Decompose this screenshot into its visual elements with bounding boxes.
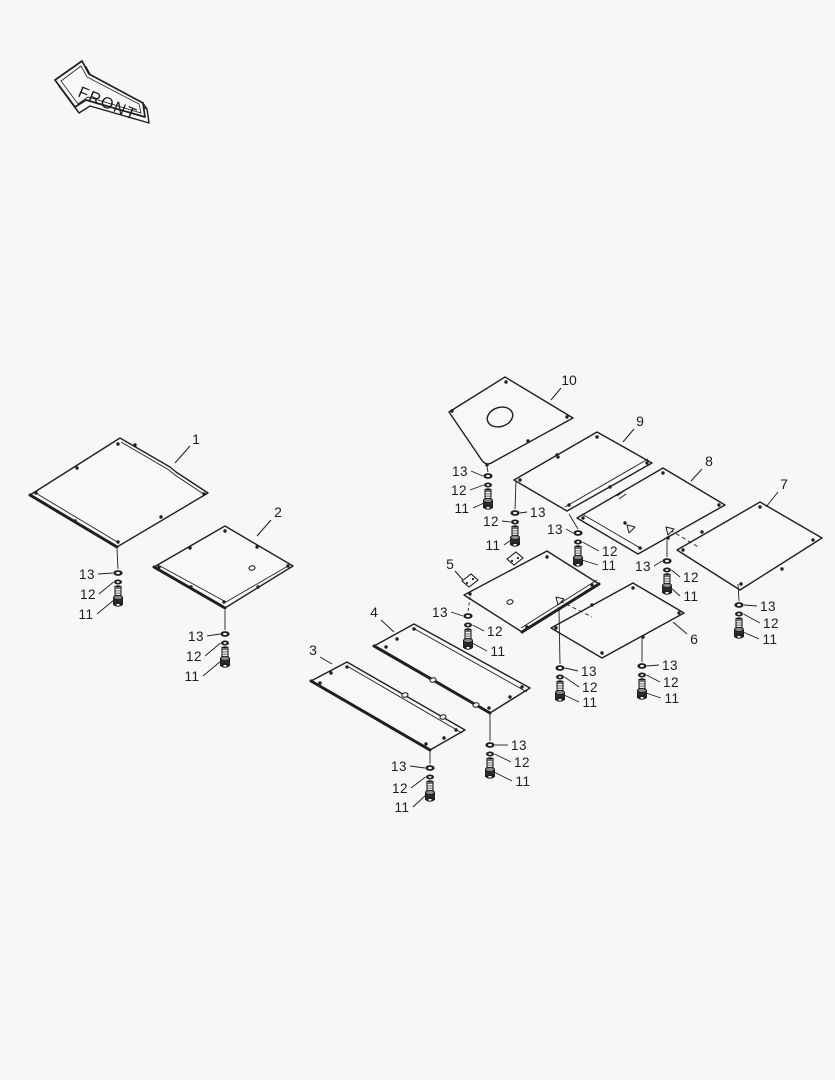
- bolt-hole-dot: [590, 603, 593, 606]
- part-label-2: 2: [274, 504, 282, 520]
- callout-label-13: 13: [581, 664, 597, 679]
- bolt-hole-dot: [189, 585, 192, 588]
- callout-label-11: 11: [762, 632, 777, 647]
- part-label-7: 7: [780, 476, 788, 492]
- bolt-head-center: [576, 564, 579, 566]
- washer-13-hole: [428, 767, 432, 769]
- part-label-10: 10: [561, 372, 577, 388]
- spring-washer-12-hole: [737, 613, 740, 615]
- bolt-hole-dot: [329, 671, 332, 674]
- bolt-shaft-top: [465, 628, 471, 631]
- spring-washer-12-hole: [640, 674, 643, 676]
- callout-label-11: 11: [394, 800, 409, 815]
- bolt-hole-dot: [468, 592, 471, 595]
- bolt-hole-dot: [286, 564, 289, 567]
- tab-hole: [466, 582, 468, 584]
- bolt-hole-dot: [157, 565, 160, 568]
- callout-label-12: 12: [487, 624, 503, 639]
- bolt-hole-dot: [623, 521, 626, 524]
- bolt-hole-dot: [545, 555, 548, 558]
- part-label-1: 1: [192, 431, 200, 447]
- bolt-head-rim: [484, 498, 493, 502]
- bolt-head-rim: [464, 638, 473, 642]
- bolt-hole-dot: [75, 466, 78, 469]
- washer-13-hole: [488, 744, 492, 746]
- bolt-hole-dot: [567, 503, 570, 506]
- bolt-hole-dot: [485, 463, 488, 466]
- bolt-hole-dot: [666, 536, 669, 539]
- bolt-hole-dot: [424, 742, 427, 745]
- callout-label-12: 12: [392, 781, 408, 796]
- callout-label-11: 11: [582, 695, 597, 710]
- bolt-head-center: [223, 665, 226, 667]
- bolt-head-rim: [426, 790, 435, 794]
- bolt-hole-dot: [223, 529, 226, 532]
- bolt-hole-dot: [739, 582, 742, 585]
- part-label-3: 3: [309, 642, 317, 658]
- bolt-hole-dot: [780, 567, 783, 570]
- callout-label-12: 12: [451, 483, 467, 498]
- bolt-hole-dot: [600, 651, 603, 654]
- bolt-hole-dot: [681, 548, 684, 551]
- bolt-hole-dot: [442, 736, 445, 739]
- washer-13-hole: [665, 560, 669, 562]
- callout-label-12: 12: [483, 514, 499, 529]
- bolt-hole-dot: [608, 485, 611, 488]
- bolt-hole-dot: [700, 530, 703, 533]
- bolt-hole-dot: [520, 685, 523, 688]
- bolt-shaft-top: [485, 488, 491, 491]
- callout-label-12: 12: [80, 587, 96, 602]
- bolt-hole-dot: [717, 503, 720, 506]
- bolt-hole-dot: [758, 505, 761, 508]
- callout-label-11: 11: [664, 691, 679, 706]
- tab-hole: [511, 560, 513, 562]
- bolt-head-center: [486, 507, 489, 509]
- bolt-hole-dot: [116, 442, 119, 445]
- bolt-hole-dot: [188, 546, 191, 549]
- bolt-hole-dot: [677, 611, 680, 614]
- spring-washer-12-hole: [428, 776, 431, 778]
- callout-label-13: 13: [79, 567, 95, 582]
- bolt-shaft-top: [575, 545, 581, 548]
- bolt-hole-dot: [595, 435, 598, 438]
- callout-label-11: 11: [601, 558, 616, 573]
- part-label-9: 9: [636, 413, 644, 429]
- bolt-hole-dot: [508, 695, 511, 698]
- bolt-shaft-top: [664, 573, 670, 576]
- bolt-head-center: [428, 799, 431, 801]
- part-label-6: 6: [690, 631, 698, 647]
- bolt-head-center: [640, 697, 643, 699]
- parts-diagram-page: FRONT10987125643131211131211131211131211…: [0, 0, 835, 1080]
- washer-13-hole: [466, 615, 470, 617]
- bolt-hole-dot: [450, 409, 453, 412]
- spring-washer-12-hole: [665, 569, 668, 571]
- washer-13-hole: [576, 532, 580, 534]
- callout-label-13: 13: [530, 505, 546, 520]
- callout-label-13: 13: [547, 522, 563, 537]
- bolt-hole-dot: [222, 600, 225, 603]
- bolt-hole-dot: [525, 625, 528, 628]
- bolt-hole-dot: [645, 461, 648, 464]
- bolt-shaft-top: [557, 680, 563, 683]
- spring-washer-12-hole: [488, 753, 491, 755]
- bolt-shaft-top: [736, 617, 742, 620]
- bolt-hole-dot: [565, 415, 568, 418]
- bolt-head-center: [665, 592, 668, 594]
- bolt-shaft-top: [115, 585, 121, 588]
- spring-washer-12-hole: [513, 521, 516, 523]
- callout-label-12: 12: [514, 755, 530, 770]
- callout-label-11: 11: [515, 774, 530, 789]
- bolt-hole-dot: [256, 585, 259, 588]
- bolt-hole-dot: [395, 637, 398, 640]
- bolt-hole-dot: [34, 491, 37, 494]
- spring-washer-12-hole: [576, 541, 579, 543]
- bolt-hole-dot: [412, 627, 415, 630]
- bolt-head-center: [488, 776, 491, 778]
- bolt-hole-dot: [454, 728, 457, 731]
- spring-washer-12-hole: [223, 642, 226, 644]
- bolt-shaft-top: [222, 646, 228, 649]
- bolt-hole-dot: [581, 516, 584, 519]
- bolt-hole-dot: [518, 478, 521, 481]
- callout-label-12: 12: [663, 675, 679, 690]
- bolt-head-center: [513, 544, 516, 546]
- callout-label-13: 13: [635, 559, 651, 574]
- spring-washer-12-hole: [116, 581, 119, 583]
- bolt-hole-dot: [159, 515, 162, 518]
- callout-label-12: 12: [602, 544, 618, 559]
- washer-13-hole: [558, 667, 562, 669]
- callout-label-11: 11: [683, 589, 698, 604]
- bolt-head-rim: [556, 690, 565, 694]
- bolt-hole-dot: [590, 583, 593, 586]
- bolt-hole-dot: [661, 471, 664, 474]
- washer-13-hole: [640, 665, 644, 667]
- bolt-hole-dot: [811, 538, 814, 541]
- bolt-hole-dot: [345, 665, 348, 668]
- callout-label-13: 13: [188, 629, 204, 644]
- callout-label-11: 11: [78, 607, 93, 622]
- bolt-hole-dot: [318, 681, 321, 684]
- bolt-head-rim: [638, 688, 647, 692]
- washer-13-hole: [737, 604, 741, 606]
- tab-hole: [472, 578, 474, 580]
- callout-label-13: 13: [511, 738, 527, 753]
- bolt-shaft-top: [639, 678, 645, 681]
- bolt-hole-dot: [255, 545, 258, 548]
- bolt-hole-dot: [554, 626, 557, 629]
- bolt-hole-dot: [631, 586, 634, 589]
- bolt-hole-dot: [73, 519, 76, 522]
- spring-washer-12-hole: [486, 484, 489, 486]
- bolt-hole-dot: [526, 439, 529, 442]
- callout-label-13: 13: [432, 605, 448, 620]
- bolt-hole-dot: [638, 546, 641, 549]
- washer-13-hole: [486, 475, 490, 477]
- bolt-shaft-top: [512, 525, 518, 528]
- callout-label-11: 11: [184, 669, 199, 684]
- callout-label-12: 12: [683, 570, 699, 585]
- bolt-head-rim: [663, 583, 672, 587]
- bolt-head-rim: [574, 555, 583, 559]
- callout-label-11: 11: [454, 501, 469, 516]
- bolt-hole-dot: [116, 540, 119, 543]
- bolt-head-center: [116, 604, 119, 606]
- bolt-head-center: [558, 699, 561, 701]
- callout-label-12: 12: [763, 616, 779, 631]
- part-label-8: 8: [705, 453, 713, 469]
- callout-label-13: 13: [391, 759, 407, 774]
- bolt-head-center: [737, 636, 740, 638]
- part-label-4: 4: [370, 604, 378, 620]
- callout-label-11: 11: [490, 644, 505, 659]
- spring-washer-12-hole: [466, 624, 469, 626]
- part-label-5: 5: [446, 556, 454, 572]
- spring-washer-12-hole: [558, 676, 561, 678]
- bolt-shaft-top: [487, 757, 493, 760]
- callout-label-13: 13: [662, 658, 678, 673]
- bolt-head-center: [466, 647, 469, 649]
- exploded-parts-diagram: FRONT10987125643131211131211131211131211…: [0, 0, 835, 1080]
- bolt-head-rim: [511, 535, 520, 539]
- bolt-head-rim: [114, 595, 123, 599]
- bolt-hole-dot: [556, 455, 559, 458]
- bolt-hole-dot: [202, 492, 205, 495]
- callout-label-13: 13: [760, 599, 776, 614]
- washer-13-hole: [223, 633, 227, 635]
- tab-hole: [517, 557, 519, 559]
- callout-label-13: 13: [452, 464, 468, 479]
- callout-label-12: 12: [186, 649, 202, 664]
- bolt-hole-dot: [487, 706, 490, 709]
- callout-label-12: 12: [582, 680, 598, 695]
- bolt-hole-dot: [133, 443, 136, 446]
- bolt-shaft-top: [427, 780, 433, 783]
- bolt-hole-dot: [504, 380, 507, 383]
- bolt-head-rim: [735, 627, 744, 631]
- washer-13-hole: [513, 512, 517, 514]
- bolt-hole-dot: [384, 645, 387, 648]
- bolt-head-rim: [221, 656, 230, 660]
- callout-label-11: 11: [485, 538, 500, 553]
- bolt-head-rim: [486, 767, 495, 771]
- washer-13-hole: [116, 572, 120, 574]
